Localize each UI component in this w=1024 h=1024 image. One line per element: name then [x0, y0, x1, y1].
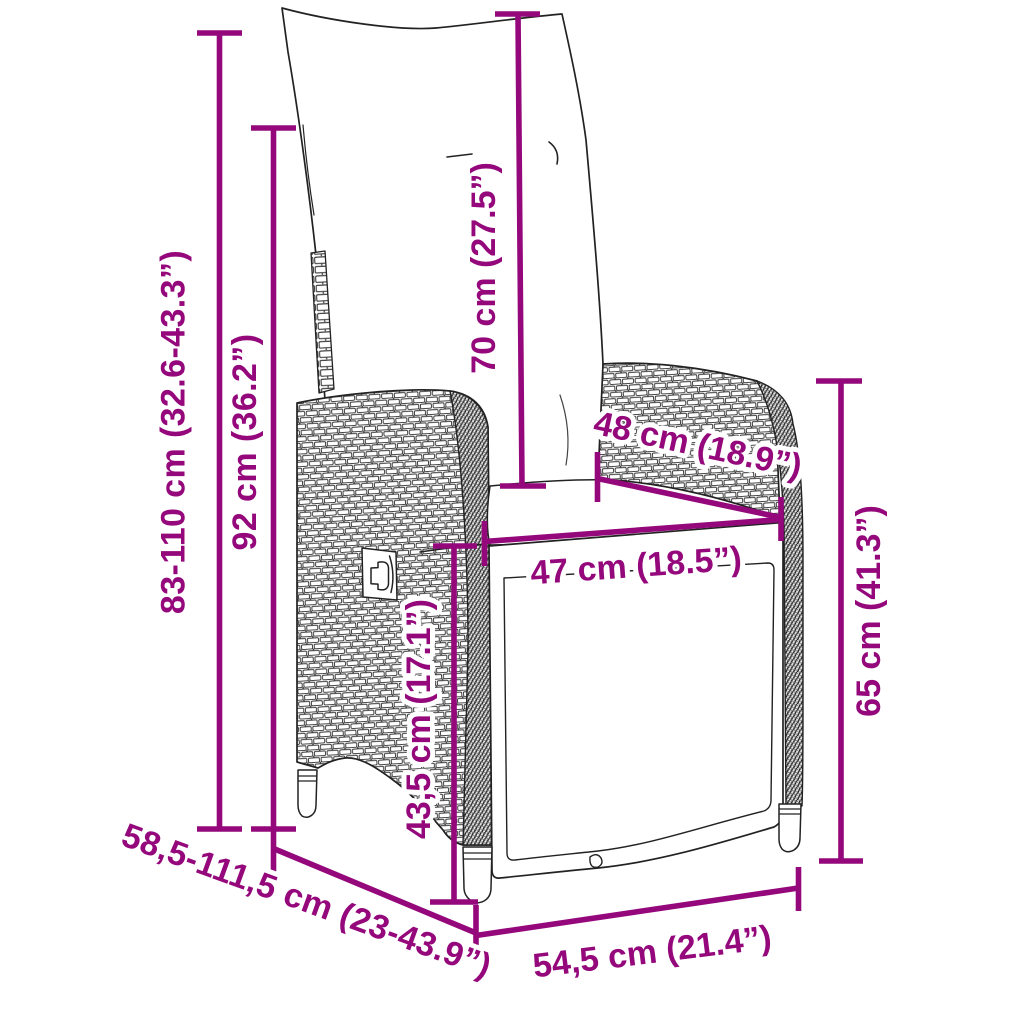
svg-text:70 cm (27.5”): 70 cm (27.5”)	[465, 162, 503, 374]
svg-text:83-110 cm (32.6-43.3”): 83-110 cm (32.6-43.3”)	[155, 250, 193, 614]
svg-text:43,5 cm (17.1”): 43,5 cm (17.1”)	[400, 599, 438, 839]
svg-text:92 cm (36.2”): 92 cm (36.2”)	[226, 334, 264, 551]
svg-text:65 cm (41.3”): 65 cm (41.3”)	[850, 505, 888, 717]
